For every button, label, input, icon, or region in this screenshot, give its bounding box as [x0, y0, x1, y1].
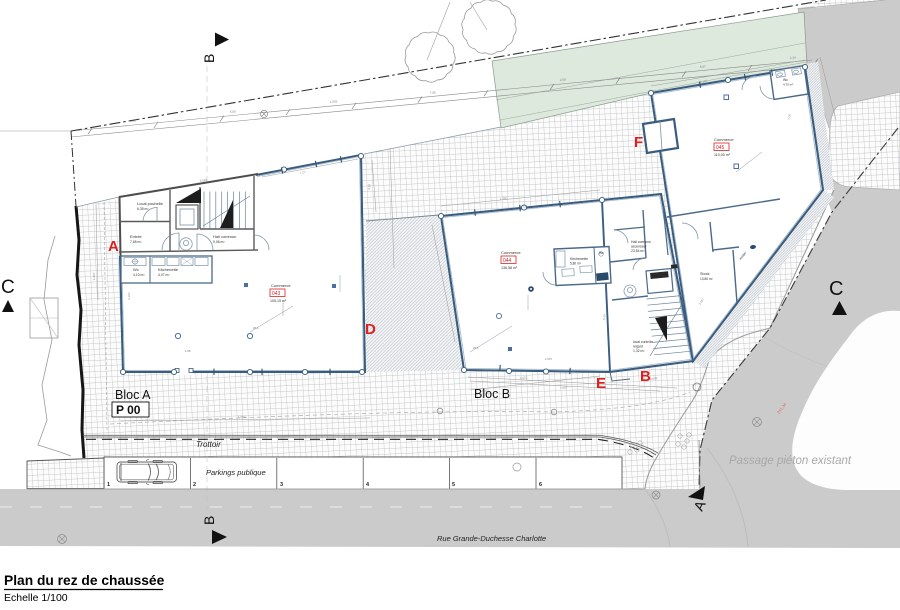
svg-text:1.092: 1.092 [238, 415, 246, 419]
svg-text:P 00: P 00 [116, 403, 141, 417]
svg-text:5.50: 5.50 [230, 109, 237, 114]
svg-text:Commerce: Commerce [714, 137, 734, 142]
svg-text:Hall commun: Hall commun [631, 240, 651, 244]
svg-text:Hall commun: Hall commun [213, 234, 236, 239]
svg-text:25,4: 25,4 [253, 326, 259, 330]
svg-text:Kitchenette: Kitchenette [570, 257, 588, 261]
svg-text:5: 5 [452, 482, 455, 488]
svg-text:1.022: 1.022 [520, 375, 528, 380]
svg-text:13,86 m²: 13,86 m² [700, 277, 713, 281]
svg-text:1.502: 1.502 [330, 99, 338, 104]
svg-text:4.19: 4.19 [367, 184, 371, 190]
svg-text:4,10 m²: 4,10 m² [133, 273, 145, 277]
svg-text:1,32 m²: 1,32 m² [633, 349, 645, 353]
svg-text:Parkings publique: Parkings publique [206, 468, 266, 477]
svg-text:5.00: 5.00 [602, 314, 607, 321]
svg-text:4,07 m²: 4,07 m² [158, 273, 170, 277]
svg-text:4.193: 4.193 [127, 292, 131, 300]
svg-text:Wc: Wc [133, 267, 139, 272]
svg-text:Echelle 1/100: Echelle 1/100 [4, 592, 68, 604]
svg-text:044: 044 [503, 258, 512, 264]
svg-text:Entrée: Entrée [130, 234, 143, 239]
svg-text:110,00 m²: 110,00 m² [714, 153, 731, 157]
svg-text:7.05: 7.05 [430, 90, 437, 95]
svg-text:C: C [1, 277, 15, 298]
svg-text:136,58 m²: 136,58 m² [501, 266, 518, 270]
svg-text:Wc: Wc [599, 251, 604, 255]
svg-text:045: 045 [716, 145, 725, 151]
svg-text:5.07: 5.07 [700, 64, 707, 69]
svg-text:3: 3 [280, 482, 283, 488]
svg-text:043: 043 [272, 291, 281, 297]
svg-text:Bloc B: Bloc B [474, 387, 510, 401]
svg-text:2: 2 [193, 482, 196, 488]
svg-text:7.007: 7.007 [560, 385, 568, 390]
svg-text:23,54 m²: 23,54 m² [631, 249, 645, 253]
svg-text:25,4: 25,4 [473, 346, 479, 350]
svg-text:Local poubelle: Local poubelle [137, 201, 164, 206]
svg-text:D: D [365, 321, 376, 338]
svg-text:1.007: 1.007 [92, 272, 96, 280]
svg-text:B: B [201, 54, 217, 63]
svg-text:4,70 m²: 4,70 m² [783, 83, 793, 87]
svg-text:Kitchenette: Kitchenette [158, 267, 179, 272]
svg-text:ascenseur: ascenseur [631, 245, 648, 249]
svg-text:1.730: 1.730 [520, 204, 528, 209]
svg-text:E: E [596, 375, 606, 392]
svg-text:1.537: 1.537 [545, 357, 552, 361]
svg-text:Plan du rez de chaussée: Plan du rez de chaussée [4, 573, 165, 588]
svg-text:Stock: Stock [700, 272, 710, 276]
svg-text:1.08: 1.08 [185, 349, 191, 353]
svg-text:1: 1 [107, 482, 110, 488]
svg-text:régard: régard [633, 345, 643, 349]
svg-text:Commerce: Commerce [501, 250, 521, 255]
svg-text:Bloc A: Bloc A [115, 388, 151, 402]
svg-text:2.50: 2.50 [560, 77, 567, 82]
svg-text:1.750: 1.750 [500, 196, 508, 201]
svg-text:Trottoir: Trottoir [196, 440, 221, 449]
svg-text:7.00: 7.00 [787, 113, 792, 120]
svg-text:9,06 m²: 9,06 m² [213, 240, 225, 244]
svg-text:Rue Grande-Duchesse Charlotte: Rue Grande-Duchesse Charlotte [437, 534, 546, 543]
svg-text:B: B [201, 516, 217, 525]
svg-text:6: 6 [539, 482, 542, 488]
svg-text:B: B [640, 368, 651, 385]
svg-text:Wc: Wc [783, 78, 788, 82]
svg-text:local contrôle: local contrôle [633, 340, 653, 344]
svg-text:C: C [829, 278, 843, 300]
svg-text:2.14: 2.14 [790, 55, 797, 60]
svg-text:A: A [108, 238, 119, 255]
svg-text:F: F [634, 134, 643, 151]
svg-text:Commerce: Commerce [271, 283, 291, 288]
svg-text:5,80 m²: 5,80 m² [570, 262, 581, 266]
svg-text:105,15 m²: 105,15 m² [270, 299, 287, 303]
svg-text:6,35 m²: 6,35 m² [137, 207, 149, 211]
svg-text:7,65 m²: 7,65 m² [130, 240, 142, 244]
svg-text:Passage piéton existant: Passage piéton existant [729, 455, 852, 467]
